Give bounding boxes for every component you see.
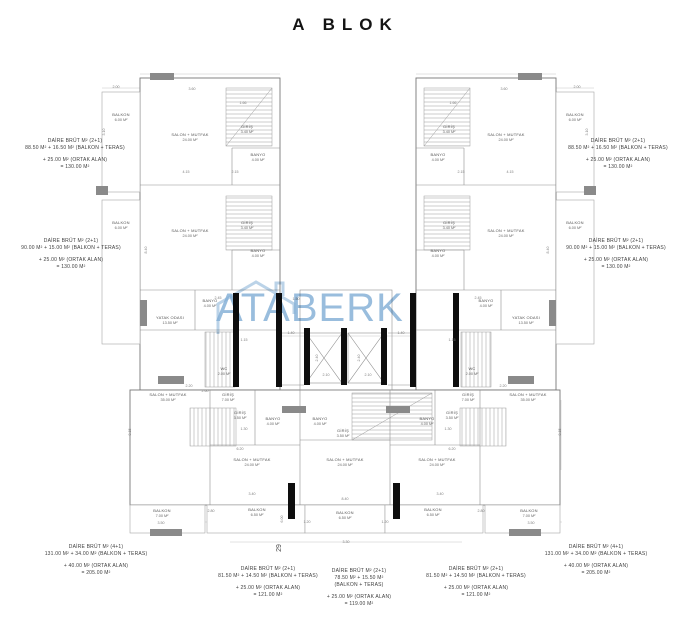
annotation-line: DAİRE BRÜT M² (4+1) <box>15 544 177 551</box>
room-label: BALKON <box>248 507 265 512</box>
unit-annotation-bottom-right: DAİRE BRÜT M² (4+1) 131.00 M² + 34.00 M²… <box>515 544 677 577</box>
dimension-label: 3.60 <box>501 87 508 91</box>
room-area: 6.50 M² <box>339 516 353 520</box>
annotation-line: 90.00 M² + 15.00 M² (BALKON + TERAS) <box>6 245 136 252</box>
room-area: 3.50 M² <box>234 416 248 420</box>
room-area: 24.00 M² <box>338 463 354 467</box>
room-area: 2.00 M² <box>466 372 480 376</box>
room-label: BALKON <box>112 220 129 225</box>
annotation-line: + 25.00 M² (ORTAK ALAN) <box>10 157 140 164</box>
room-label: SALON + MUTFAK <box>418 457 455 462</box>
room-area: 24.00 M² <box>245 463 261 467</box>
annotation-line: DAİRE BRÜT M² (2+1) <box>550 238 682 245</box>
room-label: BANYO <box>265 416 280 421</box>
room-label: SALON + MUTFAK <box>171 132 208 137</box>
room-label: GİRİŞ <box>443 220 455 225</box>
annotation-line: DAİRE BRÜT M² (2+1) <box>10 138 140 145</box>
unit-annotation-right-mid: DAİRE BRÜT M² (2+1) 90.00 M² + 15.00 M² … <box>550 238 682 271</box>
room-area: 7.00 M² <box>156 514 170 518</box>
room-area: 3.50 M² <box>337 434 351 438</box>
room-area: 3.40 M² <box>241 130 255 134</box>
annotation-line: = 130.00 M² <box>10 164 140 171</box>
annotation-line: = 130.00 M² <box>552 164 684 171</box>
dimension-label: 2.15 <box>458 170 465 174</box>
dimension-label: 2.80 <box>208 509 215 513</box>
room-label: BANYO <box>419 416 434 421</box>
dimension-label: 3.40 <box>249 492 256 496</box>
room-area: 7.00 M² <box>523 514 537 518</box>
annotation-line: DAİRE BRÜT M² (4+1) <box>515 544 677 551</box>
annotation-line: 88.50 M² + 16.50 M² (BALKON + TERAS) <box>552 145 684 152</box>
annotation-line: + 25.00 M² (ORTAK ALAN) <box>6 257 136 264</box>
room-label: BANYO <box>312 416 327 421</box>
room-area: 4.00 M² <box>432 158 446 162</box>
room-label: GİRİŞ <box>241 220 253 225</box>
dimension-label: 3.10 <box>585 129 589 136</box>
annotation-line: + 25.00 M² (ORTAK ALAN) <box>552 157 684 164</box>
room-label: GİRİŞ <box>337 428 349 433</box>
dimension-label: 3.40 <box>437 492 444 496</box>
room-label: GİRİŞ <box>462 392 474 397</box>
room-area: 4.00 M² <box>421 422 435 426</box>
annotation-line: 131.00 M² + 34.00 M² (BALKON + TERAS) <box>15 551 177 558</box>
dimension-label: 2.40 <box>315 355 319 362</box>
room-area: 24.00 M² <box>499 138 515 142</box>
floor-plan-page: A BLOK <box>0 0 691 630</box>
unit-annotation-left-top: DAİRE BRÜT M² (2+1) 88.50 M² + 16.50 M² … <box>10 138 140 171</box>
room-area: 24.00 M² <box>183 234 199 238</box>
dimension-label: 1.40 <box>288 331 295 335</box>
room-label: BANYO <box>430 248 445 253</box>
room-area: 4.00 M² <box>432 254 446 258</box>
room-area: 35.00 M² <box>161 398 177 402</box>
room-area: 6.50 M² <box>251 513 265 517</box>
annotation-line: + 25.00 M² (ORTAK ALAN) <box>550 257 682 264</box>
room-label: GİRİŞ <box>446 410 458 415</box>
dimension-label: 1.30 <box>445 427 452 431</box>
room-area: 24.00 M² <box>430 463 446 467</box>
room-area: 7.00 M² <box>462 398 476 402</box>
room-label: SALON + MUTFAK <box>171 228 208 233</box>
dimension-label: 8.15 <box>558 429 562 436</box>
room-label: GİRİŞ <box>241 124 253 129</box>
room-area: 7.00 M² <box>222 398 236 402</box>
room-area: 6.00 M² <box>115 226 129 230</box>
room-label: GİRİŞ <box>222 392 234 397</box>
annotation-line: = 130.00 M² <box>550 264 682 271</box>
room-label: SALON + MUTFAK <box>487 132 524 137</box>
dimension-label: 2.40 <box>357 355 361 362</box>
room-label: BALKON <box>112 112 129 117</box>
annotation-line: 131.00 M² + 34.00 M² (BALKON + TERAS) <box>515 551 677 558</box>
dimension-label: 1.30 <box>241 427 248 431</box>
annotation-line: 88.50 M² + 16.50 M² (BALKON + TERAS) <box>10 145 140 152</box>
annotation-line: 90.00 M² + 15.00 M² (BALKON + TERAS) <box>550 245 682 252</box>
dimension-label: 6.20 <box>237 447 244 451</box>
dimension-label: 2.45 <box>475 296 482 300</box>
dimension-label: 6.00 <box>280 516 284 523</box>
room-label: SALON + MUTFAK <box>233 457 270 462</box>
room-label: BALKON <box>336 510 353 515</box>
dimension-label: 3.50 <box>528 521 535 525</box>
room-area: 3.40 M² <box>241 226 255 230</box>
dimension-label: 1.40 <box>398 331 405 335</box>
dimension-label: 2.00 <box>574 85 581 89</box>
room-label: BANYO <box>250 152 265 157</box>
dimension-label: 4.15 <box>507 170 514 174</box>
annotation-line: DAİRE BRÜT M² (2+1) <box>552 138 684 145</box>
room-area: 3.50 M² <box>446 416 460 420</box>
annotation-line: + 25.00 M² (ORTAK ALAN) <box>398 585 554 592</box>
dimension-label: 2.80 <box>478 509 485 513</box>
unit-annotation-left-mid: DAİRE BRÜT M² (2+1) 90.00 M² + 15.00 M² … <box>6 238 136 271</box>
room-area: 4.00 M² <box>480 304 494 308</box>
room-area: 2.00 M² <box>218 372 232 376</box>
room-area: 3.40 M² <box>443 130 457 134</box>
room-label: BALKON <box>566 112 583 117</box>
room-label: WC <box>220 366 227 371</box>
room-label: BALKON <box>424 507 441 512</box>
dimension-label: 1.20 <box>382 520 389 524</box>
annotation-line: = 121.00 M² <box>398 592 554 599</box>
room-area: 4.00 M² <box>252 158 266 162</box>
room-area: 4.00 M² <box>267 422 281 426</box>
dimension-label: 2.00 <box>113 85 120 89</box>
annotation-line: + 40.00 M² (ORTAK ALAN) <box>515 563 677 570</box>
dimension-label: 8.40 <box>342 497 349 501</box>
room-label: SALON + MUTFAK <box>149 392 186 397</box>
room-label: YATAK ODASI <box>156 315 184 320</box>
annotation-line: + 40.00 M² (ORTAK ALAN) <box>15 563 177 570</box>
room-label: SALON + MUTFAK <box>326 457 363 462</box>
room-area: 6.00 M² <box>115 118 129 122</box>
room-area: 13.50 M² <box>163 321 179 325</box>
dimension-label: 1.50 <box>293 297 300 301</box>
room-area: 24.00 M² <box>499 234 515 238</box>
dimension-label: 2.10 <box>323 373 330 377</box>
dimension-label: 3.30 <box>343 540 350 544</box>
dimension-label: 2.15 <box>232 170 239 174</box>
room-label: GİRİŞ <box>443 124 455 129</box>
room-label: BANYO <box>430 152 445 157</box>
room-label: GİRİŞ <box>234 410 246 415</box>
section-marker: 29 <box>276 544 283 552</box>
room-area: 4.00 M² <box>204 304 218 308</box>
annotation-line: = 119.00 M² <box>303 601 415 608</box>
room-label: BALKON <box>153 508 170 513</box>
room-label: SALON + MUTFAK <box>487 228 524 233</box>
floor-plan-drawing: SALON + MUTFAK 24.00 M² GİRİŞ 3.40 M² BA… <box>0 0 691 630</box>
unit-annotation-bottom-left: DAİRE BRÜT M² (4+1) 131.00 M² + 34.00 M²… <box>15 544 177 577</box>
dimension-label: 3.60 <box>189 87 196 91</box>
room-area: 24.00 M² <box>183 138 199 142</box>
room-label: BALKON <box>566 220 583 225</box>
room-label: YATAK ODASI <box>512 315 540 320</box>
annotation-line: DAİRE BRÜT M² (2+1) <box>6 238 136 245</box>
annotation-line: = 205.00 M² <box>515 570 677 577</box>
dimension-label: 1.15 <box>449 338 456 342</box>
dimension-label: 1.66 <box>450 101 457 105</box>
dimension-label: 1.20 <box>304 520 311 524</box>
room-area: 6.50 M² <box>427 513 441 517</box>
dimension-label: 4.15 <box>183 170 190 174</box>
dimension-label: 1.15 <box>241 338 248 342</box>
dimension-label: 3.50 <box>158 521 165 525</box>
room-area: 3.40 M² <box>443 226 457 230</box>
room-area: 13.50 M² <box>519 321 535 325</box>
annotation-line: = 205.00 M² <box>15 570 177 577</box>
dimension-label: 6.20 <box>449 447 456 451</box>
room-label: BANYO <box>250 248 265 253</box>
annotation-line: = 130.00 M² <box>6 264 136 271</box>
dimension-label: 8.15 <box>128 429 132 436</box>
unit-annotation-right-top: DAİRE BRÜT M² (2+1) 88.50 M² + 16.50 M² … <box>552 138 684 171</box>
room-label: SALON + MUTFAK <box>509 392 546 397</box>
dimension-label: 8.40 <box>144 247 148 254</box>
dimension-label: 2.20 <box>500 384 507 388</box>
dimension-label: 2.60 <box>202 389 209 393</box>
room-area: 35.00 M² <box>521 398 537 402</box>
room-label: BALKON <box>520 508 537 513</box>
room-area: 4.00 M² <box>314 422 328 426</box>
room-area: 4.00 M² <box>252 254 266 258</box>
dimension-label: 2.10 <box>365 373 372 377</box>
room-area: 6.00 M² <box>569 226 583 230</box>
dimension-label: 2.20 <box>186 384 193 388</box>
room-label: WC <box>468 366 475 371</box>
room-area: 6.00 M² <box>569 118 583 122</box>
dimension-label: 2.45 <box>215 296 222 300</box>
dimension-label: 1.66 <box>240 101 247 105</box>
dimension-label: 3.10 <box>102 129 106 136</box>
